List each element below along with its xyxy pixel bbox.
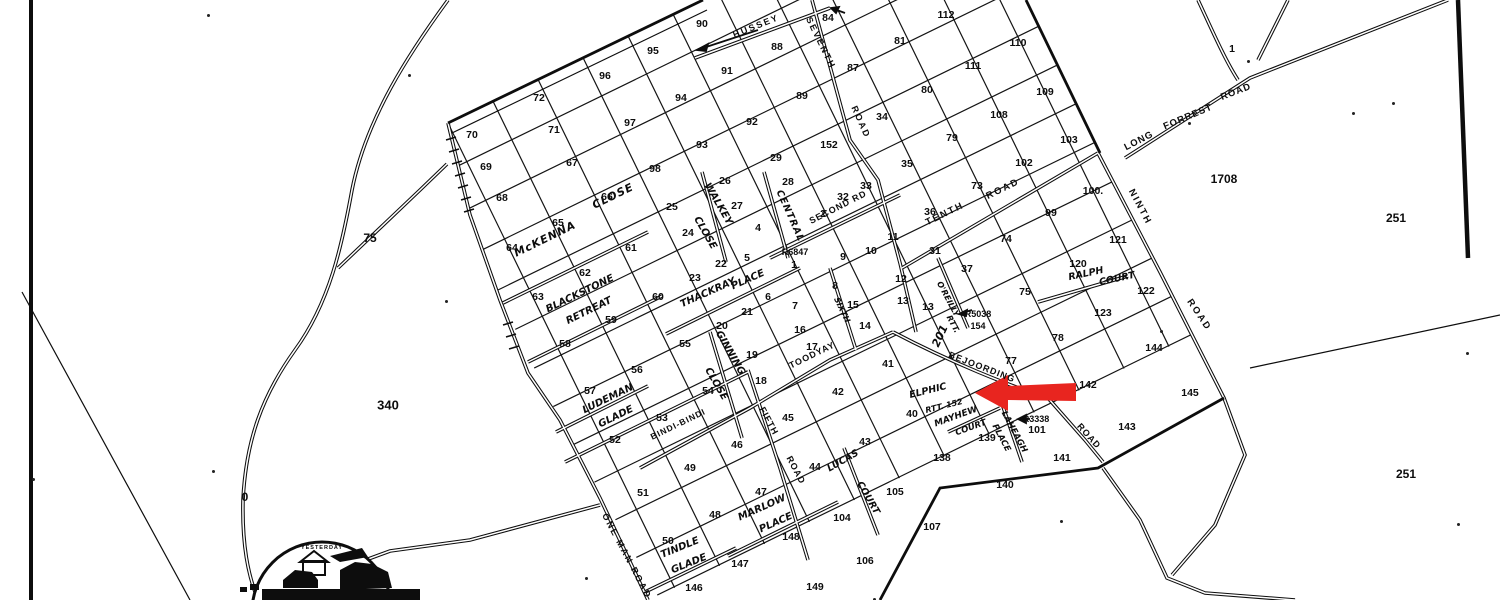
emblem-machine-right xyxy=(340,562,392,590)
annotation-arrows xyxy=(697,7,1030,423)
map-canvas: 7071726968676665646362616059585756555453… xyxy=(0,0,1500,600)
red-arrow-marker xyxy=(975,375,1076,411)
road-network xyxy=(243,0,1448,600)
east-heavy-line xyxy=(1458,0,1468,258)
emblem-banner xyxy=(262,589,420,600)
parcel-grid xyxy=(328,0,1270,600)
map-line-work xyxy=(0,0,1500,600)
